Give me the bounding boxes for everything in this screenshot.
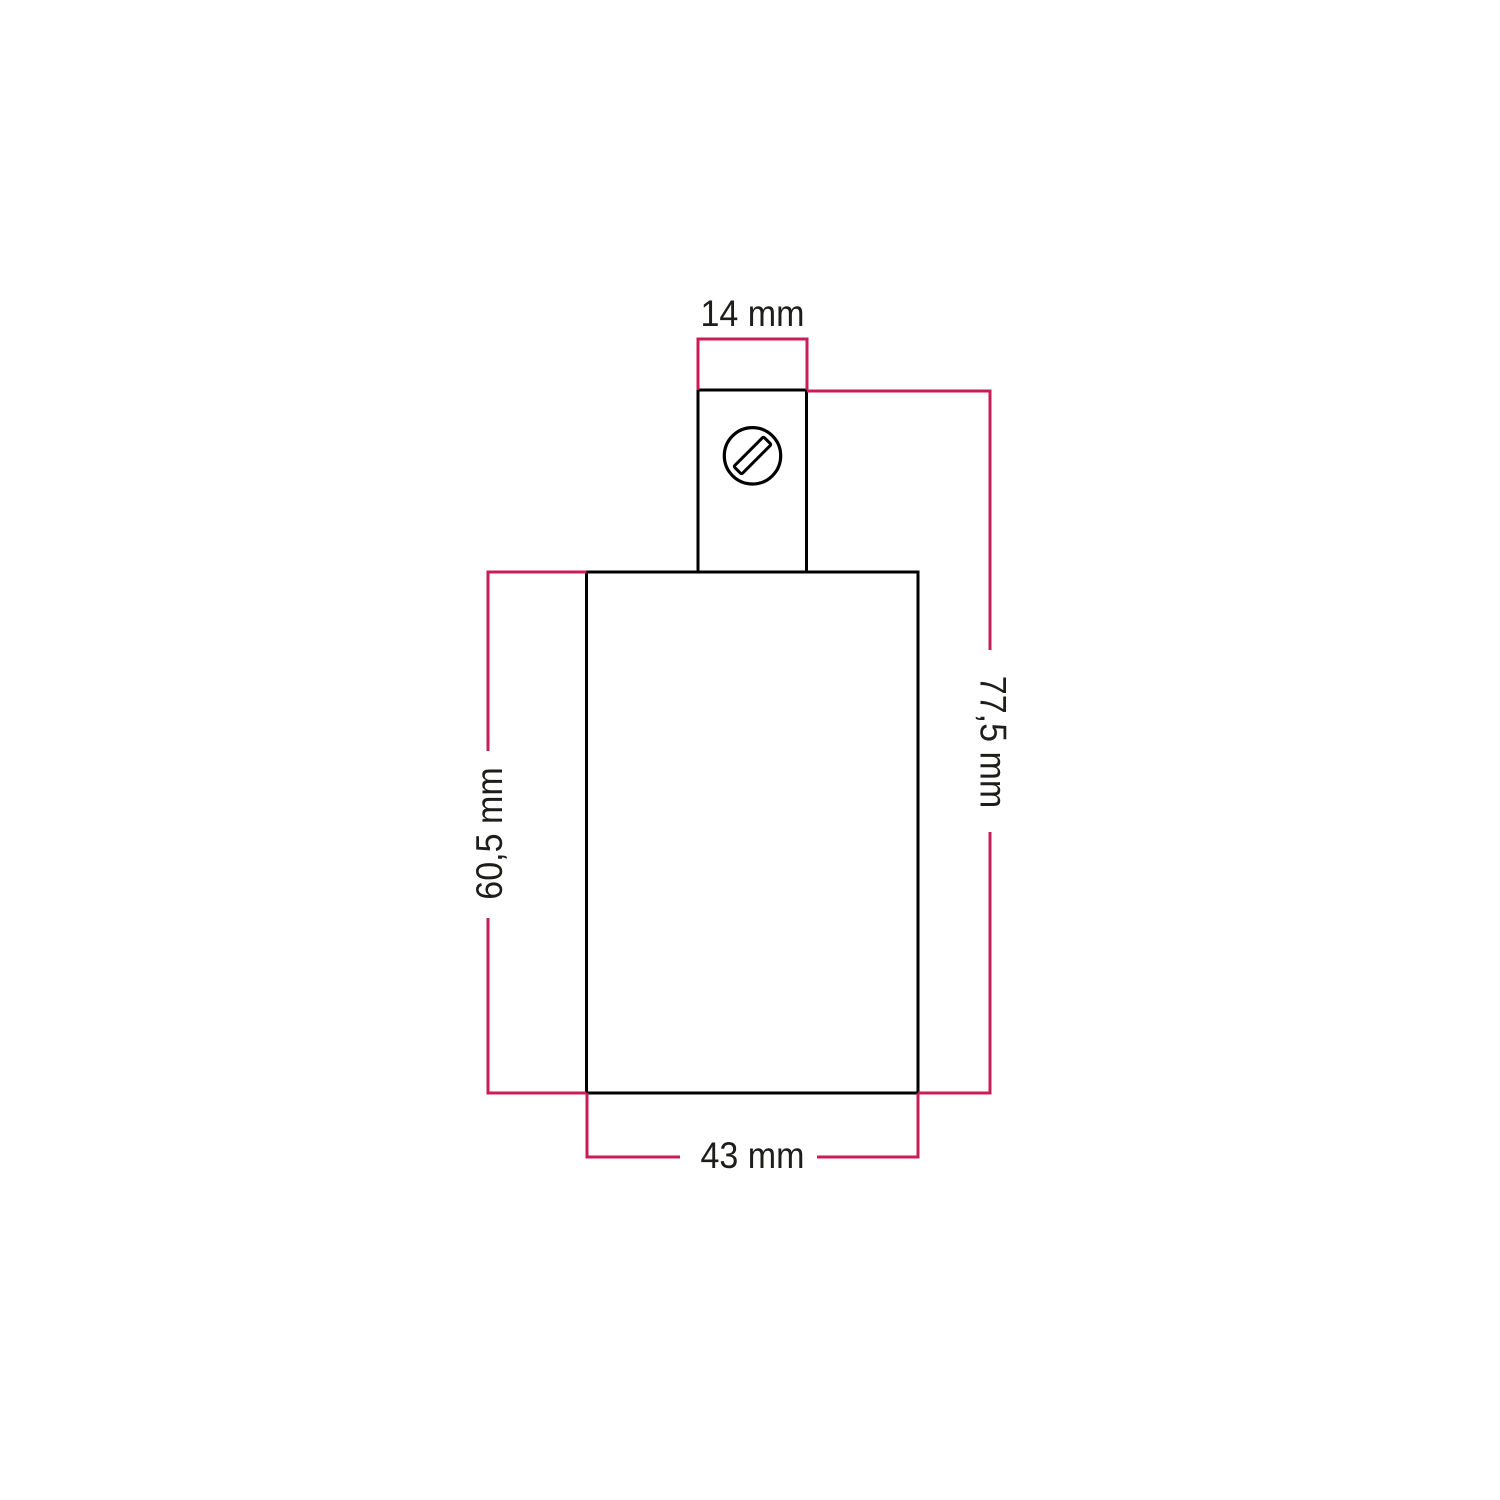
svg-text:60,5 mm: 60,5 mm	[469, 767, 511, 899]
svg-text:43 mm: 43 mm	[700, 1135, 804, 1177]
svg-text:14 mm: 14 mm	[700, 293, 804, 335]
svg-text:77,5 mm: 77,5 mm	[972, 676, 1014, 808]
